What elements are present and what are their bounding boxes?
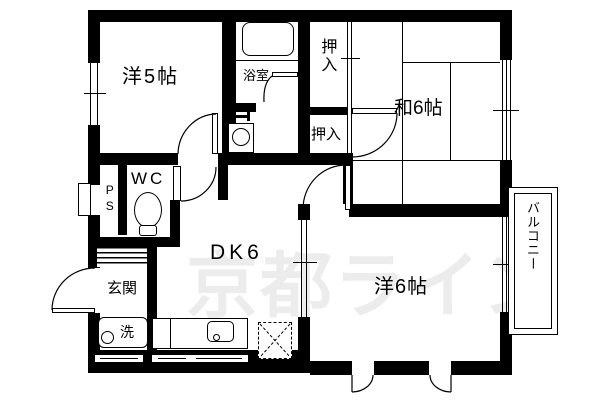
wall-wc-bottom	[88, 237, 180, 247]
door-leaf-west6	[345, 165, 351, 210]
bath-divider-line	[236, 60, 298, 61]
wall-wc-right	[170, 200, 180, 237]
sliding-door-tick	[293, 262, 317, 263]
door-leaf-wc	[173, 166, 181, 201]
door-arc-south-b	[430, 375, 451, 392]
door-arc-entrance	[52, 268, 95, 310]
window-wa6-tick	[493, 110, 519, 111]
wall-bath-bottom	[222, 103, 256, 112]
counter-divider	[170, 319, 171, 348]
room-label-ps: PS	[102, 183, 116, 215]
closet-sliding-door	[347, 22, 348, 153]
bathtub	[242, 22, 294, 56]
sliding-door-dk-west6	[306, 220, 307, 317]
wall-washroom-bottom	[218, 153, 353, 165]
sink-faucet	[213, 334, 220, 341]
room-label-japanese6: 和6帖	[394, 98, 443, 120]
room-label-dk: DK6	[210, 241, 263, 265]
kitchen-sink	[207, 321, 234, 342]
tatami-line	[450, 62, 451, 160]
room-label-laundry: 洗	[120, 324, 134, 340]
sliding-door-dk-west6	[301, 220, 302, 317]
wall-dk-west6	[298, 204, 310, 220]
closet-sliding-tick	[341, 58, 360, 59]
room-label-balcony: バルコニー	[524, 201, 539, 271]
door-gap	[429, 361, 451, 375]
entrance-step-hatch	[97, 247, 147, 267]
room-label-entrance: 玄関	[107, 280, 137, 297]
wall-left	[88, 22, 100, 63]
wall-right	[500, 22, 512, 60]
slit-mark	[100, 358, 138, 359]
floorplan: 京都ライン	[0, 0, 600, 400]
room-label-closet-top: 押入	[317, 38, 335, 74]
room-label-closet-bottom: 押入	[311, 126, 341, 143]
door-arc-south-a	[352, 375, 373, 392]
tatami-line	[353, 160, 500, 161]
toilet-bowl	[134, 192, 162, 228]
room-label-western5: 洋5帖	[122, 66, 179, 89]
wall-bottom-west6	[310, 361, 512, 375]
room-label-wc: WC	[131, 169, 165, 189]
towel-bar-icon	[247, 112, 250, 121]
door-leaf-west5	[212, 113, 218, 154]
wall-wa6-west6	[349, 204, 512, 217]
door-arc-wc	[181, 167, 216, 201]
door-arc-wa6	[352, 113, 397, 157]
door-arc-west5	[178, 114, 216, 154]
door-leaf-wa6	[352, 108, 397, 114]
door-leaf-entrance	[52, 308, 95, 313]
slit-mark	[196, 358, 242, 359]
wall-ps-wc	[118, 165, 127, 235]
wall-dk-west6	[298, 317, 310, 364]
window-west5	[97, 63, 98, 125]
closet-sliding-door	[351, 22, 352, 153]
window-ps	[78, 183, 91, 216]
toilet-base	[139, 225, 157, 236]
door-arc-west6	[303, 165, 346, 209]
door-leaf-bath	[272, 72, 298, 77]
washing-machine-drum	[232, 128, 250, 146]
room-label-western6: 洋6帖	[374, 276, 428, 299]
tatami-line	[402, 62, 500, 63]
slit-mark	[158, 358, 186, 359]
wall-west5-bottom	[88, 153, 178, 165]
wall-bath-closet	[298, 10, 310, 165]
window-west5	[90, 63, 91, 125]
door-gap	[352, 361, 374, 375]
wall-closet-divider	[310, 107, 347, 115]
room-label-bathroom: 浴室	[243, 69, 269, 84]
window-west5-tick	[84, 93, 106, 94]
laundry-drain	[101, 331, 114, 344]
refrigerator-space	[258, 322, 292, 359]
towel-bar-icon	[228, 112, 231, 121]
